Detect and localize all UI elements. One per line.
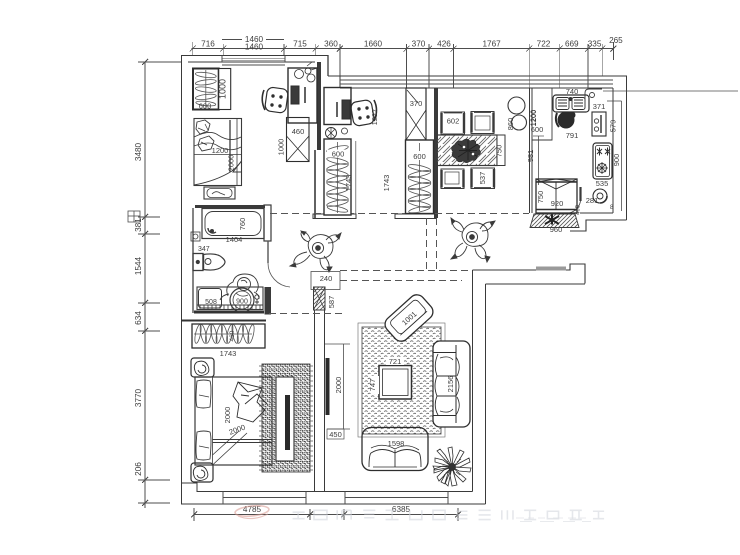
svg-text:535: 535 [596, 179, 609, 188]
svg-text:669: 669 [565, 40, 579, 49]
svg-text:1660: 1660 [364, 40, 383, 49]
svg-text:750: 750 [495, 145, 504, 158]
svg-text:1200: 1200 [212, 146, 229, 155]
svg-text:1000: 1000 [218, 79, 228, 99]
svg-text:400: 400 [576, 204, 582, 215]
svg-text:240: 240 [320, 274, 333, 283]
svg-text:347: 347 [198, 246, 210, 253]
svg-text:206: 206 [134, 462, 143, 476]
svg-text:920: 920 [551, 199, 564, 208]
svg-text:1743: 1743 [220, 349, 237, 358]
svg-text:335: 335 [588, 40, 602, 49]
svg-text:587: 587 [327, 296, 336, 309]
svg-text:1598: 1598 [388, 439, 405, 448]
svg-text:600: 600 [199, 102, 212, 111]
svg-text:1460: 1460 [245, 43, 264, 52]
svg-text:360: 360 [324, 40, 338, 49]
svg-text:265: 265 [609, 36, 623, 45]
svg-text:860: 860 [506, 118, 515, 131]
svg-text:460: 460 [229, 330, 236, 341]
svg-text:1767: 1767 [482, 40, 501, 49]
svg-text:600: 600 [413, 152, 426, 161]
svg-text:371: 371 [593, 102, 606, 111]
svg-text:740: 740 [566, 87, 579, 96]
svg-text:1404: 1404 [226, 235, 243, 244]
svg-text:600: 600 [332, 150, 345, 159]
svg-text:900: 900 [612, 154, 621, 167]
svg-text:1200: 1200 [529, 110, 538, 127]
svg-text:537: 537 [478, 172, 487, 185]
svg-text:747: 747 [368, 379, 377, 392]
svg-text:716: 716 [201, 40, 215, 49]
svg-text:602: 602 [447, 117, 460, 126]
svg-text:460: 460 [292, 127, 305, 136]
svg-text:281: 281 [586, 196, 599, 205]
svg-text:981: 981 [526, 150, 535, 163]
svg-text:426: 426 [437, 40, 451, 49]
svg-text:634: 634 [134, 311, 143, 325]
svg-text:760: 760 [238, 218, 247, 231]
svg-text:2000: 2000 [334, 377, 343, 394]
svg-text:750: 750 [536, 191, 545, 204]
svg-text:6385: 6385 [392, 505, 411, 514]
svg-text:2156: 2156 [446, 376, 455, 393]
svg-text:1544: 1544 [134, 256, 143, 275]
svg-text:3480: 3480 [134, 142, 143, 161]
svg-text:508: 508 [205, 299, 217, 306]
svg-text:3770: 3770 [134, 388, 143, 407]
svg-text:381: 381 [134, 218, 143, 232]
svg-text:722: 722 [537, 40, 551, 49]
svg-text:1743: 1743 [382, 175, 391, 192]
svg-text:2000: 2000 [227, 155, 236, 172]
svg-text:2000: 2000 [223, 407, 232, 424]
svg-text:960: 960 [550, 225, 563, 234]
svg-text:450: 450 [329, 430, 342, 439]
svg-text:715: 715 [293, 40, 307, 49]
svg-text:1743: 1743 [344, 175, 353, 192]
svg-text:900: 900 [236, 299, 248, 306]
svg-text:721: 721 [389, 357, 402, 366]
svg-text:579: 579 [609, 120, 618, 133]
svg-text:1227: 1227 [370, 109, 379, 126]
svg-text:370: 370 [412, 40, 426, 49]
svg-text:791: 791 [566, 131, 579, 140]
svg-text:1000: 1000 [277, 139, 286, 156]
